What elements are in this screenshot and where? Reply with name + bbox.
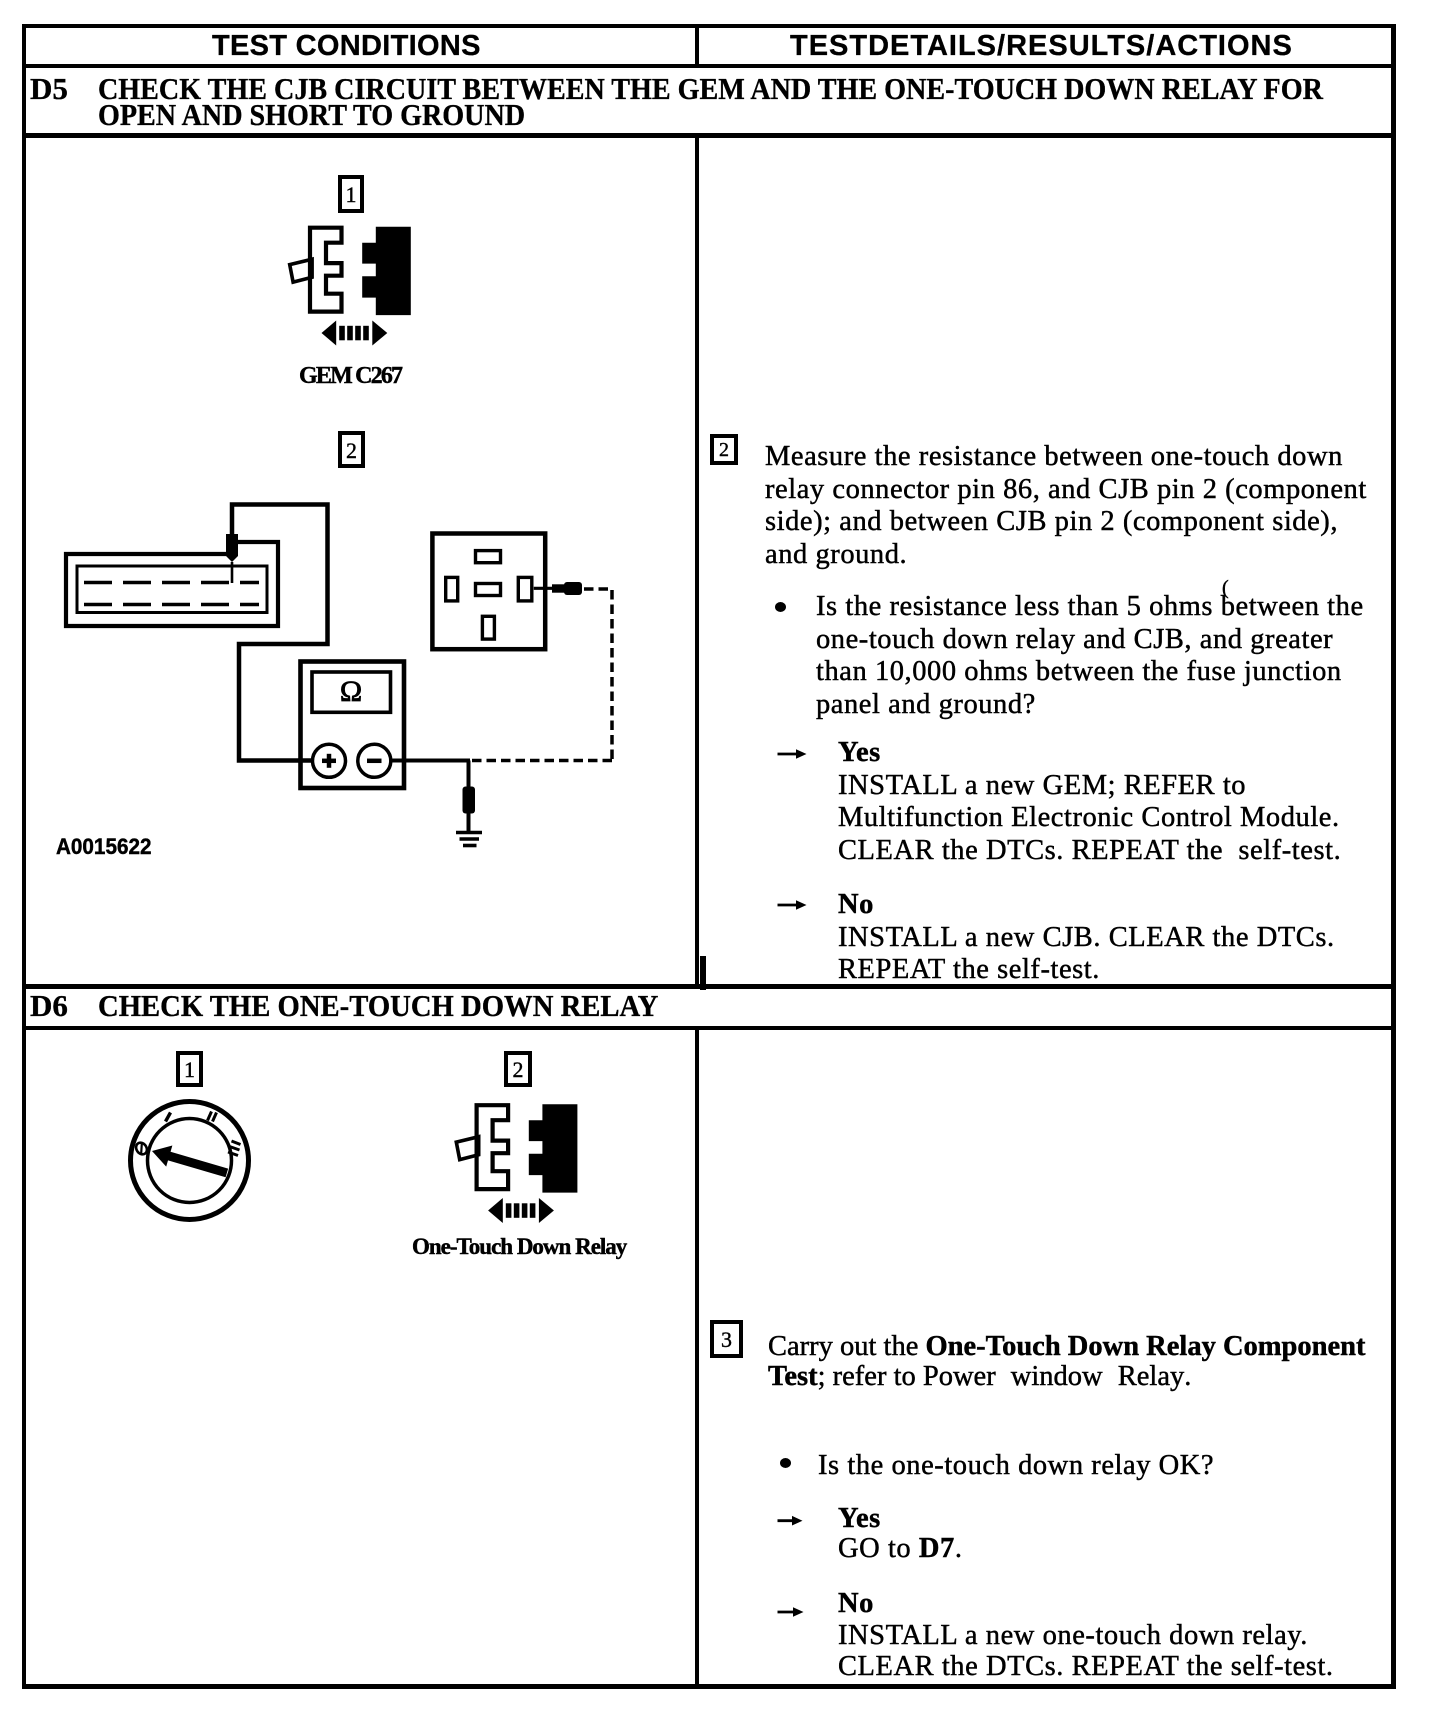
svg-text:Ω: Ω [340, 675, 362, 708]
